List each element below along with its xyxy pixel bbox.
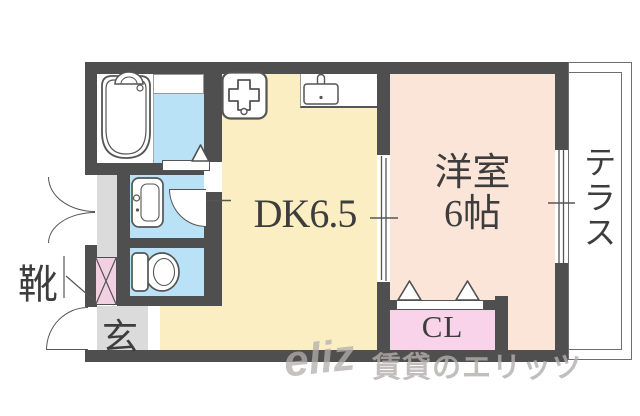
wall-right-upper [555, 62, 568, 150]
dk-label: DK6.5 [250, 190, 360, 237]
wall-hall-washroom [117, 175, 130, 306]
entrance-step-strip [148, 306, 160, 350]
western-room-name: 洋室 [425, 153, 520, 194]
shoe-cabinet [95, 257, 117, 305]
kitchen-counter [300, 74, 377, 108]
double-door-swing-lower [48, 212, 95, 243]
dk-floor-entry-strip [160, 306, 204, 350]
toilet-floor [128, 248, 206, 298]
terrace-label: テラス [572, 145, 620, 280]
window-western-terrace [555, 150, 568, 263]
western-room-size: 6帖 [425, 194, 520, 235]
wall-dk-western-lower [377, 282, 390, 352]
bathroom-window [153, 74, 204, 94]
hallway-floor [97, 175, 117, 257]
closet-label: CL [390, 309, 495, 345]
double-door-swing-upper [48, 177, 95, 212]
entrance-label: 玄 [102, 308, 138, 360]
bathroom-wet-floor [153, 94, 204, 163]
shoe-cabinet-label: 靴 [18, 252, 58, 310]
wall-toilet-bottom [130, 296, 222, 306]
wall-dk-western-upper [377, 62, 390, 155]
floor-plan: DK6.5 洋室 6帖 テラス 靴 玄 CL eliz 賃貸のエリッツ [0, 0, 640, 416]
wall-top [85, 62, 568, 74]
wall-washroom-toilet [130, 238, 206, 248]
bathroom-folding-door [162, 160, 210, 171]
sliding-door-dk-western [377, 155, 390, 282]
western-room-label: 洋室 6帖 [425, 153, 520, 235]
watermark-logo: eliz [282, 330, 358, 387]
watermark-text: 賃貸のエリッツ [372, 344, 582, 386]
entrance-door-swing [46, 307, 88, 350]
